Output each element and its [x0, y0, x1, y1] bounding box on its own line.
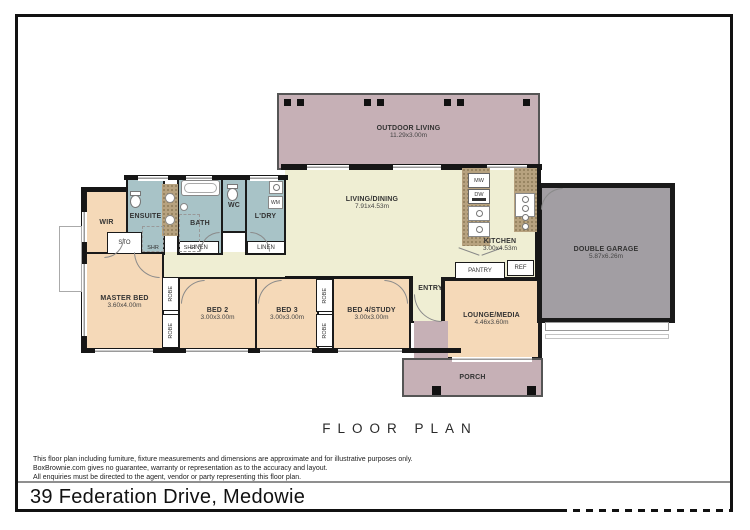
floor-plan-page: { "title": "FLOOR PLAN", "address": "39 … — [0, 0, 750, 530]
page-border — [15, 14, 733, 512]
dashed-border-segment — [560, 509, 733, 512]
